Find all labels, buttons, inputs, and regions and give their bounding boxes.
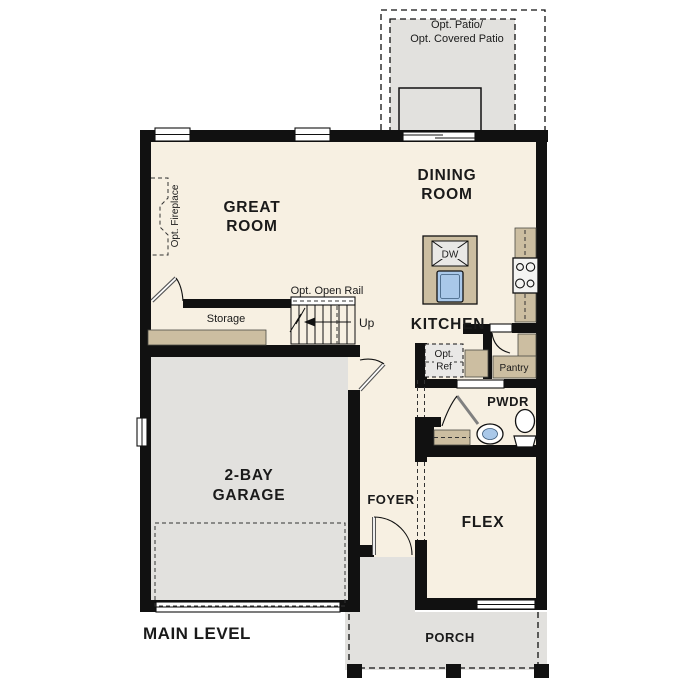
kitchen-counter-nook — [465, 350, 488, 377]
pantry-shelf-right — [518, 334, 536, 358]
wall-bench-nook-top — [427, 417, 441, 427]
flex-label: FLEX — [462, 514, 505, 531]
porch-post-left — [347, 664, 362, 678]
wall-right — [536, 130, 547, 610]
patio-stoop — [399, 88, 481, 131]
wall-powder-top-left — [415, 379, 457, 388]
dining-room-label-line1: DINING — [417, 167, 476, 184]
porch-entry-floor — [360, 557, 415, 614]
garage-label-line1: 2-BAY — [224, 467, 273, 484]
wall-pantry-top — [512, 323, 536, 333]
floor-plan-drawing: Opt. Patio/ Opt. Covered Patio PORCH — [0, 0, 687, 687]
wall-powder-top-right — [504, 379, 536, 388]
refrigerator-optional: Opt. Ref — [425, 344, 463, 377]
window-garage-left — [137, 418, 147, 446]
powder-sink — [477, 424, 503, 444]
wall-left — [140, 130, 151, 612]
wall-foyer-bottom — [348, 545, 374, 557]
dishwasher-label: DW — [442, 250, 459, 261]
sliding-door-dining — [403, 132, 475, 141]
great-room-label-line1: GREAT — [223, 199, 280, 216]
patio-label-line1: Opt. Patio/ — [431, 19, 484, 31]
porch-post-middle — [446, 664, 461, 678]
wall-garage-right — [348, 390, 360, 600]
refrigerator-label-line1: Opt. — [435, 349, 454, 360]
toilet — [514, 410, 536, 448]
storage-shelf — [148, 330, 266, 345]
storage-label: Storage — [207, 313, 246, 325]
wall-storage-top — [183, 299, 293, 308]
stove — [513, 258, 538, 293]
fireplace-label: Opt. Fireplace — [170, 184, 181, 247]
kitchen-label: KITCHEN — [411, 316, 486, 333]
floor-plan: Opt. Patio/ Opt. Covered Patio PORCH — [0, 0, 687, 687]
window-flex-bottom — [477, 600, 535, 609]
plan-title: MAIN LEVEL — [143, 624, 251, 643]
refrigerator-label-line2: Ref — [436, 362, 452, 373]
great-room-label-line2: ROOM — [226, 218, 277, 235]
garage-overhead-door — [156, 602, 340, 612]
patio-label-line2: Opt. Covered Patio — [410, 33, 504, 45]
foyer-label: FOYER — [367, 492, 414, 507]
window-great-room-left — [155, 128, 190, 141]
window-great-room-right — [295, 128, 330, 141]
garage-label-line2: GARAGE — [213, 487, 286, 504]
dining-room-label-line2: ROOM — [421, 186, 472, 203]
kitchen-island: DW — [423, 236, 477, 304]
powder-label: PWDR — [487, 394, 529, 409]
porch-label: PORCH — [425, 630, 474, 645]
dishwasher: DW — [432, 241, 468, 266]
open-rail-label: Opt. Open Rail — [291, 285, 364, 297]
pantry-label: Pantry — [500, 363, 529, 374]
stairs-up-label: Up — [359, 316, 375, 330]
wall-top — [140, 130, 548, 142]
patio-area: Opt. Patio/ Opt. Covered Patio — [381, 10, 545, 131]
wall-garage-top — [140, 345, 360, 357]
porch-post-right — [534, 664, 549, 678]
